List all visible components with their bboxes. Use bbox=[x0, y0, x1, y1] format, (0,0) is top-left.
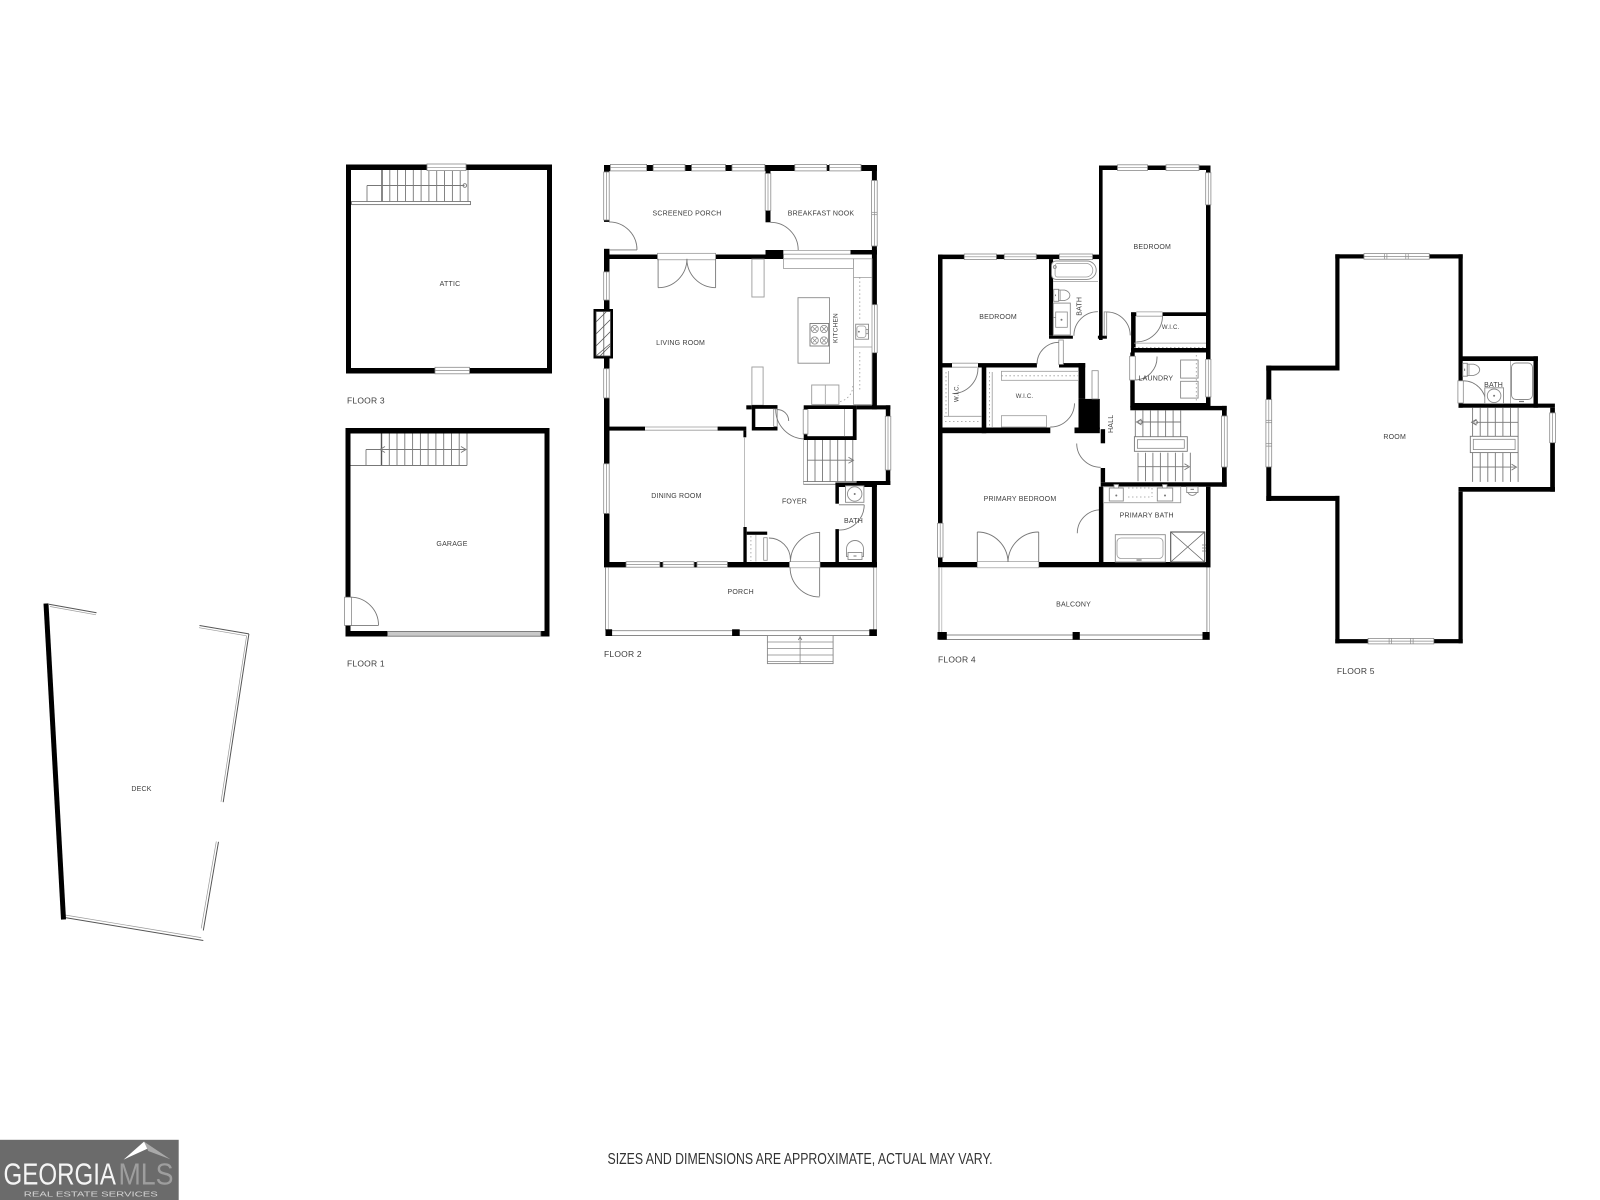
svg-text:REAL ESTATE SERVICES: REAL ESTATE SERVICES bbox=[24, 1192, 159, 1199]
svg-text:LIVING ROOM: LIVING ROOM bbox=[656, 340, 705, 347]
svg-text:SIZES AND DIMENSIONS ARE APPRO: SIZES AND DIMENSIONS ARE APPROXIMATE, AC… bbox=[608, 1151, 993, 1168]
svg-text:FLOOR 4: FLOOR 4 bbox=[938, 654, 976, 664]
svg-text:BEDROOM: BEDROOM bbox=[979, 314, 1017, 321]
svg-text:W.I.C.: W.I.C. bbox=[1016, 394, 1034, 400]
svg-text:ATTIC: ATTIC bbox=[440, 281, 461, 288]
svg-text:FLOOR 3: FLOOR 3 bbox=[347, 396, 385, 406]
svg-text:ROOM: ROOM bbox=[1383, 434, 1406, 441]
svg-text:W.I.C.: W.I.C. bbox=[1162, 325, 1180, 331]
svg-text:FLOOR 1: FLOOR 1 bbox=[347, 659, 385, 669]
svg-text:PRIMARY BATH: PRIMARY BATH bbox=[1120, 513, 1174, 520]
svg-text:DINING ROOM: DINING ROOM bbox=[651, 493, 701, 500]
svg-text:PORCH: PORCH bbox=[728, 589, 754, 596]
svg-text:BATH: BATH bbox=[844, 518, 863, 525]
svg-text:BATH: BATH bbox=[1077, 297, 1084, 316]
svg-text:BALCONY: BALCONY bbox=[1056, 602, 1091, 609]
svg-text:MLS: MLS bbox=[119, 1156, 174, 1191]
svg-text:GEORGIA: GEORGIA bbox=[4, 1156, 117, 1191]
svg-text:HALL: HALL bbox=[1108, 415, 1115, 433]
svg-text:GARAGE: GARAGE bbox=[436, 541, 467, 548]
svg-text:DECK: DECK bbox=[131, 786, 151, 793]
svg-text:SCREENED PORCH: SCREENED PORCH bbox=[653, 211, 722, 218]
svg-text:KITCHEN: KITCHEN bbox=[833, 313, 840, 343]
svg-text:W.I.C.: W.I.C. bbox=[955, 384, 961, 402]
svg-text:BEDROOM: BEDROOM bbox=[1134, 244, 1172, 251]
svg-text:FLOOR 5: FLOOR 5 bbox=[1337, 666, 1375, 676]
svg-text:LAUNDRY: LAUNDRY bbox=[1139, 376, 1174, 383]
svg-text:BREAKFAST NOOK: BREAKFAST NOOK bbox=[788, 211, 855, 218]
svg-text:FLOOR 2: FLOOR 2 bbox=[604, 649, 642, 659]
svg-text:PRIMARY BEDROOM: PRIMARY BEDROOM bbox=[984, 496, 1057, 503]
svg-text:FOYER: FOYER bbox=[782, 499, 807, 506]
svg-text:BATH: BATH bbox=[1484, 382, 1503, 389]
